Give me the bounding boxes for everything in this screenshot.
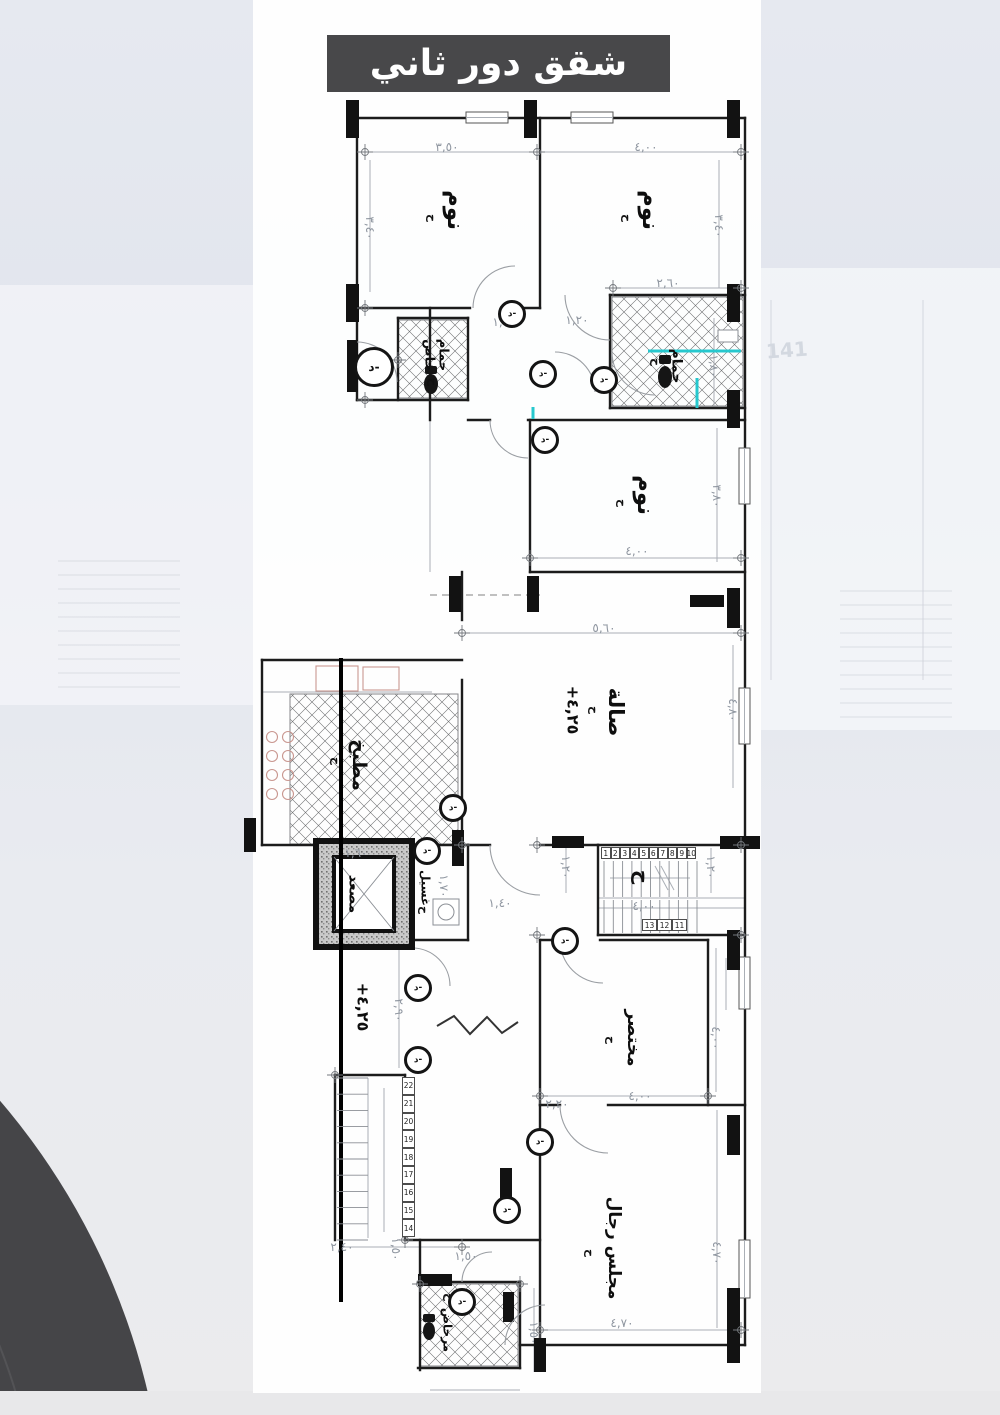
dimension-text: ٥,٦٠ (592, 621, 615, 635)
dimension-text: ١,٥٠ (454, 1249, 477, 1263)
stair-number: 4 (630, 847, 640, 859)
dimension-text: ٢,٤٠ (330, 1240, 353, 1254)
stair-number: 8 (668, 847, 678, 859)
dimension-text: ٣,٤٠ (363, 216, 377, 239)
stair-number: 11 (672, 919, 687, 931)
dimension-text: ٤,٠٠ (634, 140, 657, 154)
dimension-text: ١,٥٠ (527, 1321, 541, 1344)
stair-number: 15 (402, 1202, 415, 1220)
stair-number: 1 (601, 847, 611, 859)
plan-text-overlay: نومنومنومحمام خاصحمامصالةمطبخمصعدغسيلمخت… (0, 0, 1000, 1415)
room-label-bedroom-3: نوم (633, 475, 657, 515)
dimension-text: ٢,٢٠ (545, 1097, 568, 1111)
dimension-text: ٤,٠٠ (709, 1026, 723, 1049)
stair-numbers-flight1: 12345678910 (601, 847, 696, 859)
dimension-text: ٤,٧٠ (610, 1316, 633, 1330)
door-tag: د- (498, 300, 526, 328)
room-label-bedroom-2: نوم (638, 190, 662, 230)
stair-number: 20 (402, 1113, 415, 1131)
label-mark: ح (418, 906, 431, 914)
page: 141 شقق دور ثاني نومنومنومحمام خاصحمامصا… (0, 0, 1000, 1415)
room-label-laundry: غسيل (419, 870, 432, 906)
dimension-text: ٤,٠٠ (632, 899, 655, 913)
stair-number: 16 (402, 1184, 415, 1202)
label-mark: ح (616, 499, 629, 507)
stair-number: 7 (658, 847, 668, 859)
label-mark: ح (427, 378, 440, 386)
label-mark: ح (588, 706, 601, 714)
stair-number: 14 (402, 1219, 415, 1237)
door-tag: د- (493, 1196, 521, 1224)
dimension-text: ٤,٧٠ (710, 1241, 724, 1264)
elevation-label: +٤,٢٥ (354, 983, 371, 1032)
label-mark: ح (330, 757, 343, 765)
door-tag: د- (354, 347, 394, 387)
stair-number: 12 (657, 919, 672, 931)
dimension-text: ١,٥٠ (389, 1237, 403, 1260)
stair-number: 10 (687, 847, 697, 859)
room-label-hall: صالة (605, 688, 627, 737)
room-label-private-bath: حمام خاص (422, 337, 449, 373)
label-mark: ح (584, 1249, 597, 1257)
door-tag: د- (439, 794, 467, 822)
dimension-text: ١,٨٠ (707, 354, 721, 377)
dimension-text: ٣,٨٠ (710, 484, 724, 507)
label-mark: ح (605, 1036, 618, 1044)
label-mark: ح (631, 870, 655, 884)
dimension-text: ٤,٠٠ (625, 544, 648, 558)
dimension-text: ١,٢٠ (559, 855, 573, 878)
dimension-text: ٣,٥٠ (435, 140, 458, 154)
stair-number: 5 (639, 847, 649, 859)
room-label-wc: مرحاض (441, 1308, 454, 1352)
label-mark: ح (426, 214, 439, 222)
stair-number: 22 (402, 1077, 415, 1095)
door-tag: د- (404, 974, 432, 1002)
door-tag: د- (590, 366, 618, 394)
dimension-text: ١,٢٠ (704, 855, 718, 878)
stair-number: 19 (402, 1130, 415, 1148)
stair-number: 21 (402, 1095, 415, 1113)
elevation-label: +٤,٢٥ (564, 686, 581, 735)
stair-number: 6 (649, 847, 659, 859)
door-tag: د- (413, 837, 441, 865)
dimension-text: ١,٦٠ (344, 846, 367, 860)
label-mark: ح (650, 358, 663, 366)
dimension-text: ٤,٨٠ (726, 698, 740, 721)
stair-number: 17 (402, 1166, 415, 1184)
room-label-men-majlis: مجلس رجال (604, 1197, 622, 1300)
room-label-sitting: مختصر (623, 1009, 641, 1066)
dimension-text: ١,٤٠ (488, 896, 511, 910)
door-tag: د- (531, 426, 559, 454)
room-label-kitchen: مطبخ (348, 739, 368, 791)
stair-number: 2 (611, 847, 621, 859)
stair-number: 18 (402, 1148, 415, 1166)
room-label-elevator: مصعد (346, 875, 361, 913)
stair-number: 9 (677, 847, 687, 859)
label-mark: ح (621, 214, 634, 222)
dimension-text: ٢,٦٠ (656, 276, 679, 290)
door-tag: د- (551, 927, 579, 955)
stair-numbers-flight2: 131211 (642, 919, 687, 931)
stair-numbers-flight3: 222120191817161514 (402, 1077, 415, 1237)
door-tag: د- (404, 1046, 432, 1074)
door-tag: د- (529, 360, 557, 388)
stair-number: 3 (620, 847, 630, 859)
room-label-bathroom: حمام (669, 349, 684, 384)
room-label-bedroom-1: نوم (443, 190, 467, 230)
dimension-text: ١,٢٠ (565, 313, 588, 327)
door-tag: د- (526, 1128, 554, 1156)
dimension-text: ٣,٤٠ (712, 214, 726, 237)
door-tag: د- (448, 1288, 476, 1316)
dimension-text: ١,٧٠ (437, 874, 451, 897)
dimension-text: ٢,٩٠ (392, 998, 406, 1021)
dimension-text: ٤,٠٠ (628, 1089, 651, 1103)
stair-number: 13 (642, 919, 657, 931)
